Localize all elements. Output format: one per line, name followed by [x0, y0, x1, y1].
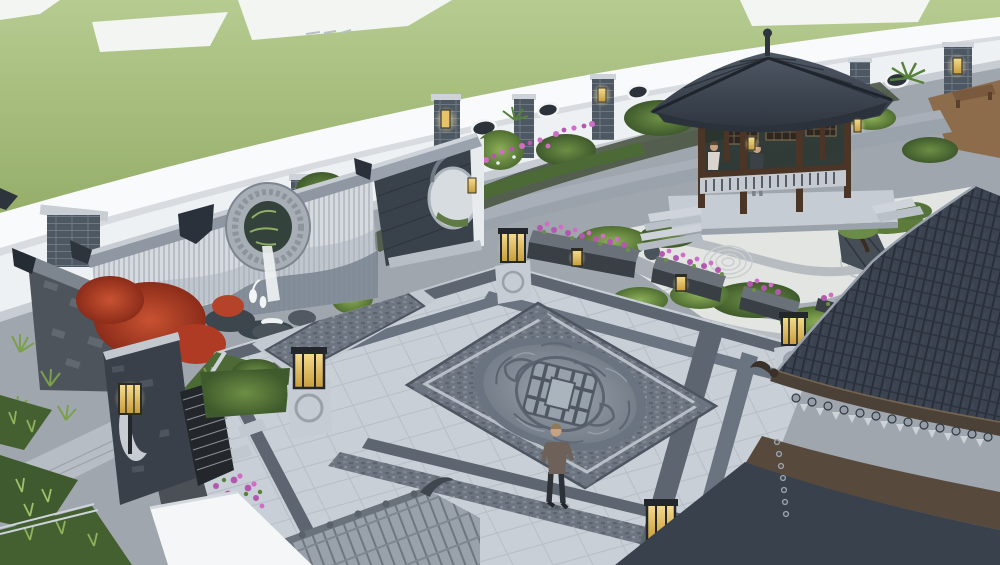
sconce-lamp-icon	[441, 110, 450, 128]
garden-rendering	[0, 0, 1000, 565]
rendering-canvas	[0, 0, 1000, 565]
hedge-top-strip	[200, 368, 290, 418]
sconce-lamp-icon	[953, 58, 962, 74]
sconce-lamp-icon	[598, 88, 606, 102]
